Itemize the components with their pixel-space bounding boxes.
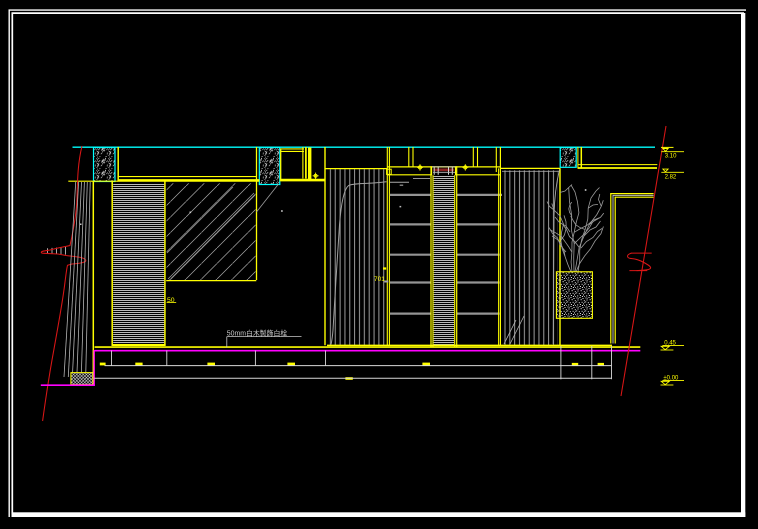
svg-text:50mm白木製飾白栓: 50mm白木製飾白栓 <box>227 328 288 337</box>
svg-text:2.82: 2.82 <box>665 174 677 180</box>
svg-text:3.10: 3.10 <box>665 154 677 160</box>
svg-text:701: 701 <box>374 276 385 283</box>
